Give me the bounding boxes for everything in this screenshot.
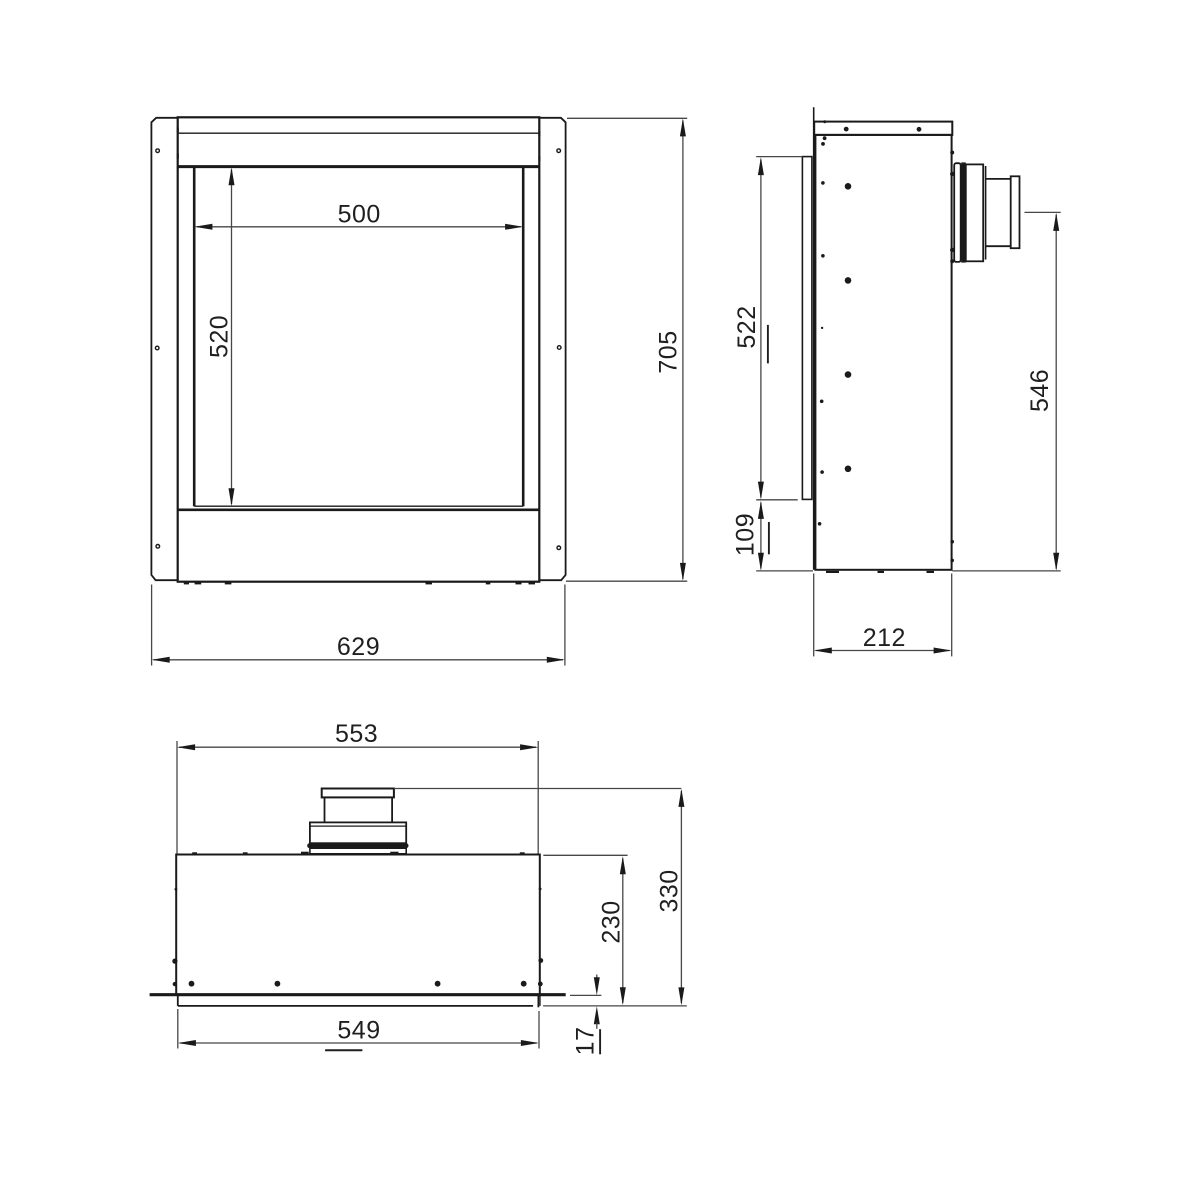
svg-text:522: 522 [733,305,761,348]
svg-text:553: 553 [335,720,378,748]
svg-text:109: 109 [731,513,759,556]
svg-text:500: 500 [338,200,381,228]
svg-text:546: 546 [1026,369,1054,412]
svg-text:230: 230 [597,900,625,943]
svg-text:549: 549 [337,1017,380,1045]
svg-text:17: 17 [571,1026,599,1055]
svg-text:705: 705 [654,330,682,373]
svg-text:330: 330 [656,869,684,912]
svg-text:520: 520 [206,315,234,358]
svg-text:212: 212 [863,624,906,652]
svg-text:629: 629 [337,633,380,661]
